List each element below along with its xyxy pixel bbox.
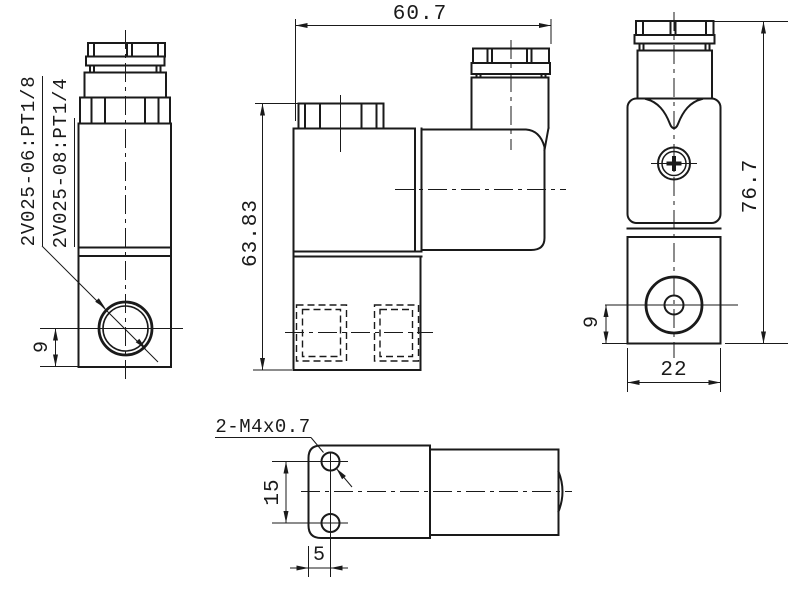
left-dim-9: 9 bbox=[31, 329, 78, 367]
left-side-view: 2V025-06:PT1/8 2V025-08:PT1/4 9 bbox=[18, 30, 183, 382]
dim-63-83-group: 63.83 bbox=[240, 104, 298, 371]
dim-overall-height: 76.7 bbox=[740, 159, 763, 213]
dim-overall-width: 60.7 bbox=[393, 3, 447, 26]
model-label-pt14: 2V025-08:PT1/4 bbox=[50, 78, 72, 249]
dim-hole-spacing: 15 bbox=[262, 478, 285, 505]
right-dim-9-group: 9 bbox=[581, 305, 628, 344]
dim-5-group: 5 bbox=[290, 544, 348, 577]
left-view-outline bbox=[79, 43, 172, 367]
front-view-outline bbox=[294, 49, 551, 371]
bottom-view: 2-M4x0.7 15 5 bbox=[215, 416, 572, 577]
cad-drawing: 2V025-06:PT1/8 2V025-08:PT1/4 9 bbox=[0, 0, 790, 596]
dim-left-port-offset: 9 bbox=[31, 341, 54, 353]
right-view-centerlines bbox=[605, 12, 738, 358]
front-view-centerlines bbox=[285, 40, 566, 333]
m4-label-leader: 2-M4x0.7 bbox=[215, 416, 352, 487]
dim-15-group: 15 bbox=[262, 462, 289, 524]
front-view: 60.7 63.83 bbox=[240, 3, 566, 370]
dim-body-width: 22 bbox=[660, 359, 687, 382]
drawing-canvas: 2V025-06:PT1/8 2V025-08:PT1/4 9 bbox=[0, 0, 790, 596]
right-side-view: 9 22 76.7 bbox=[581, 12, 788, 392]
dim-76-7-group: 76.7 bbox=[715, 22, 789, 344]
dim-body-height: 63.83 bbox=[240, 199, 263, 267]
dim-hole-offset: 5 bbox=[313, 544, 325, 567]
dim-front-port-offset: 9 bbox=[581, 316, 604, 328]
label-mounting-holes: 2-M4x0.7 bbox=[215, 416, 310, 438]
model-label-pt18: 2V025-06:PT1/8 bbox=[18, 76, 40, 247]
